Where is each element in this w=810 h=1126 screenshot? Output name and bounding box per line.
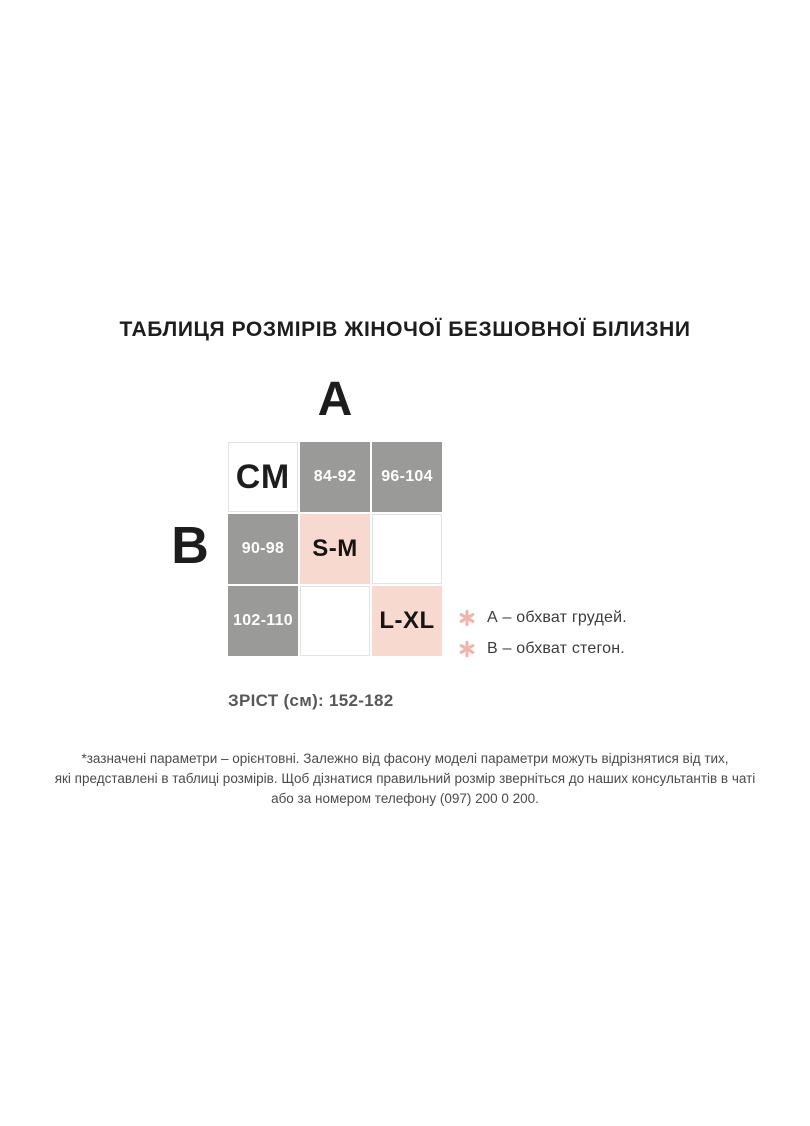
size-table-cell-size-sm: S-M (300, 514, 370, 584)
legend-label-hips: В – обхват стегон. (487, 640, 625, 658)
size-table-cell-empty (372, 514, 442, 584)
size-table: СМ 84-92 96-104 90-98 S-M 102-110 L-XL (228, 442, 442, 656)
size-table-cell-bust-range-2: 96-104 (372, 442, 442, 512)
disclaimer-line: які представлені в таблиці розмірів. Щоб… (33, 769, 778, 789)
disclaimer-line: або за номером телефону (097) 200 0 200. (33, 789, 778, 809)
size-table-cell-unit: СМ (228, 442, 298, 512)
disclaimer-line: *зазначені параметри – орієнтовні. Залеж… (33, 749, 778, 769)
column-axis-label-bust: А (300, 376, 370, 424)
asterisk-icon (458, 640, 476, 658)
legend: А – обхват грудей. В – обхват стегон. (458, 602, 627, 664)
legend-item-hips: В – обхват стегон. (458, 633, 627, 664)
legend-item-bust: А – обхват грудей. (458, 602, 627, 633)
page-title: ТАБЛИЦЯ РОЗМІРІВ ЖІНОЧОЇ БЕЗШОВНОЇ БІЛИЗ… (0, 318, 810, 342)
asterisk-icon (458, 609, 476, 627)
legend-label-bust: А – обхват грудей. (487, 609, 627, 627)
size-table-cell-bust-range-1: 84-92 (300, 442, 370, 512)
size-table-cell-size-lxl: L-XL (372, 586, 442, 656)
disclaimer-text: *зазначені параметри – орієнтовні. Залеж… (33, 749, 778, 809)
size-table-cell-empty (300, 586, 370, 656)
row-axis-label-hips: В (156, 520, 224, 572)
height-note: ЗРІСТ (см): 152-182 (228, 691, 394, 711)
size-chart-page: ТАБЛИЦЯ РОЗМІРІВ ЖІНОЧОЇ БЕЗШОВНОЇ БІЛИЗ… (0, 0, 810, 1126)
size-table-cell-hip-range-1: 90-98 (228, 514, 298, 584)
size-table-cell-hip-range-2: 102-110 (228, 586, 298, 656)
